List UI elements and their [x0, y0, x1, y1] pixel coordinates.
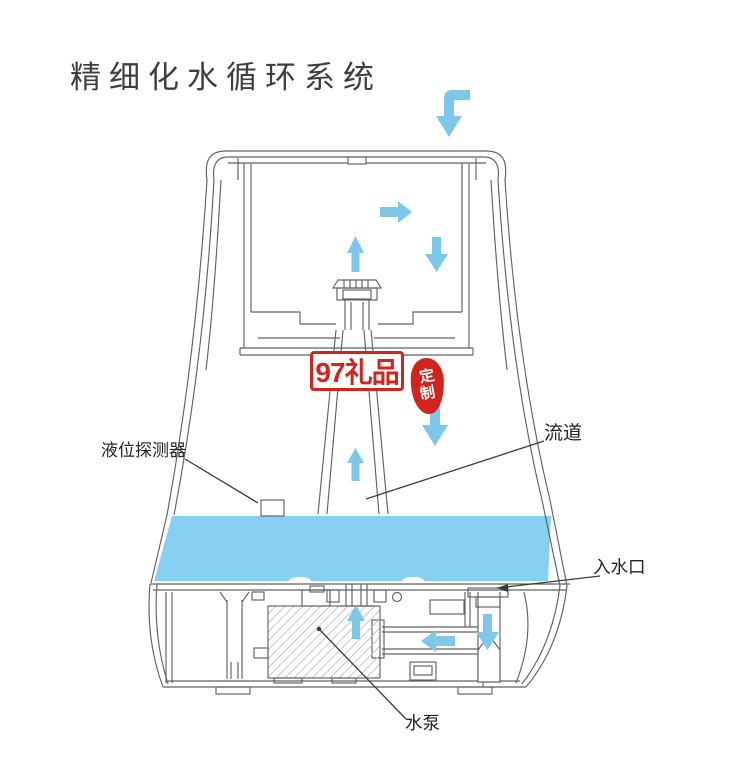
chamber-up-arrow [347, 236, 364, 272]
mist-tube-up-arrow [347, 448, 364, 481]
label-level-sensor: 液位探测器 [101, 436, 186, 461]
label-water-pump: 水泵 [405, 710, 440, 735]
water-pump-box [268, 606, 380, 683]
water-fill [154, 516, 551, 585]
humidifier-water-system-page: 精细化水循环系统 [0, 0, 750, 758]
top-inflow-elbow-arrow [436, 90, 470, 137]
chamber-right-arrow [380, 201, 412, 223]
seal-char-bottom: 制 [419, 385, 437, 405]
chamber-down-arrow [425, 237, 448, 272]
label-flow-channel: 流道 [544, 418, 582, 445]
label-water-inlet: 入水口 [593, 554, 646, 579]
watermark-badge: 97礼品 [310, 351, 404, 391]
